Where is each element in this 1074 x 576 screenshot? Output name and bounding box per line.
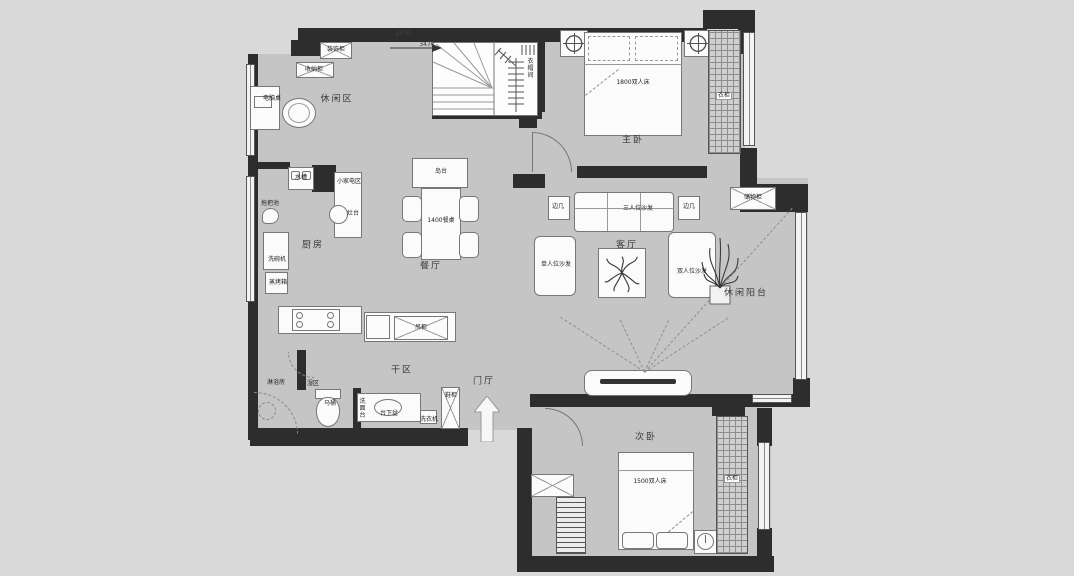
label-shower-room: 淋浴房: [267, 380, 285, 386]
label-decor-cabinet: 装饰柜: [327, 47, 345, 53]
label-sink: 水槽: [295, 175, 307, 181]
label-side-table-left: 边几: [552, 204, 564, 210]
dining-table: [421, 188, 461, 260]
label-side-table-right: 边几: [683, 204, 695, 210]
bedroom2-wardrobe: [716, 416, 748, 554]
label-computer-desk: 电脑桌: [263, 96, 281, 102]
mop-basin: [262, 208, 279, 224]
wall-segment: [258, 162, 290, 169]
wall-segment: [519, 119, 537, 128]
downlight-icon: [563, 33, 585, 54]
label-under-counter-basin: 台下盆: [380, 411, 398, 417]
label-master-wardrobe: 衣柜: [716, 92, 732, 100]
label-wet-area: 湿区: [307, 381, 319, 387]
label-second-bedroom: 次卧: [635, 434, 657, 443]
bed-drawer: [622, 532, 654, 549]
label-bedroom2-wardrobe: 衣柜: [724, 475, 740, 483]
label-foyer: 门厅: [473, 378, 495, 387]
blanket-line: [584, 64, 682, 65]
dining-chair: [402, 232, 422, 258]
balcony-door: [752, 394, 792, 403]
label-kitchen: 厨房: [302, 242, 324, 251]
bed-drawer: [656, 532, 688, 549]
wall-segment: [757, 528, 772, 572]
wall-segment: [712, 396, 745, 416]
window: [758, 442, 770, 530]
window: [743, 32, 755, 146]
appliance-box: [366, 315, 390, 339]
shower-head-icon: [258, 402, 276, 420]
label-dishwasher: 洗碗机: [268, 257, 286, 263]
staircase-icon: [432, 42, 538, 116]
label-sofa-three-seat: 三人位沙发: [623, 206, 653, 212]
tv-screen: [600, 379, 676, 384]
refrigerator-block: [312, 165, 336, 192]
label-dry-area: 干区: [391, 367, 413, 376]
coffee-table: [598, 248, 646, 298]
label-double-sofa: 双人位沙发: [677, 269, 707, 275]
dining-chair: [459, 232, 479, 258]
window: [795, 212, 807, 380]
wok-burner: [329, 205, 348, 224]
label-dining-room: 餐厅: [420, 263, 442, 272]
label-living-room: 客厅: [616, 242, 638, 251]
label-steam-oven: 蒸烤箱: [269, 280, 287, 286]
plant-icon: [599, 249, 645, 297]
label-washing-machine: 洗衣机: [420, 417, 438, 423]
wall-segment: [517, 556, 774, 572]
dishwasher-cabinet: [263, 232, 289, 270]
label-dining-table: 1400餐桌: [427, 218, 454, 224]
downlight-icon: [687, 33, 709, 54]
lamp-tick: [705, 535, 706, 543]
label-bed2: 1500双人床: [633, 479, 666, 485]
label-single-sofa: 单人位沙发: [541, 262, 571, 268]
label-hanging-cabinet: 吊柜: [415, 325, 427, 331]
label-mop-basin: 拖把池: [261, 201, 279, 207]
wall-segment: [291, 40, 323, 56]
label-master-bed: 1800双人床: [616, 80, 649, 86]
desk-chair-seat: [288, 103, 310, 123]
sofa-cushion: [607, 193, 640, 231]
computer-desk: [250, 86, 280, 130]
wall-segment: [757, 408, 772, 446]
label-dim-lower: 3470: [419, 42, 434, 48]
label-stove: 灶台: [347, 211, 359, 217]
pillow-line: [618, 470, 694, 471]
label-shoe-cabinet: 鞋柜: [445, 393, 457, 399]
sofa-cushion: [575, 193, 607, 231]
bedroom2-cabinet: [531, 474, 574, 497]
wall-segment: [513, 174, 545, 188]
entry-arrow-icon: [474, 396, 500, 442]
pillow: [588, 36, 630, 61]
dining-chair: [402, 196, 422, 222]
label-small-appliance-area: 小家电区: [337, 179, 361, 185]
label-toilet: 马桶: [324, 401, 336, 407]
label-cloakroom: 衣帽间: [526, 58, 532, 79]
dining-chair: [459, 196, 479, 222]
floor-plan: 休闲区主卧客厅餐厅厨房干区湿区淋浴房门厅休闲阳台次卧装饰柜收纳柜电脑桌衣帽间18…: [0, 0, 1074, 576]
sofa-cushion: [640, 193, 673, 231]
label-storage-low-cabinet: 收纳柜: [305, 67, 323, 73]
burner: [327, 312, 334, 319]
label-master-bedroom: 主卧: [622, 137, 644, 146]
label-dim-upper: 2270: [395, 31, 410, 37]
radiator-louver: [556, 497, 586, 554]
wall-segment: [577, 166, 707, 178]
wall-segment: [793, 378, 810, 405]
burner: [296, 321, 303, 328]
label-island-counter: 岛台: [435, 169, 447, 175]
label-balcony-storage: 储物柜: [744, 195, 762, 201]
sofa-three-seat: [574, 192, 674, 232]
burner: [327, 321, 334, 328]
burner: [296, 312, 303, 319]
staircase-cloakroom: [432, 42, 538, 116]
label-leisure-area: 休闲区: [320, 96, 353, 105]
label-vanity: 洗面台: [358, 398, 364, 419]
window: [246, 176, 255, 302]
pillow: [635, 36, 678, 61]
label-leisure-balcony: 休闲阳台: [724, 290, 768, 299]
wall-segment: [517, 428, 532, 572]
